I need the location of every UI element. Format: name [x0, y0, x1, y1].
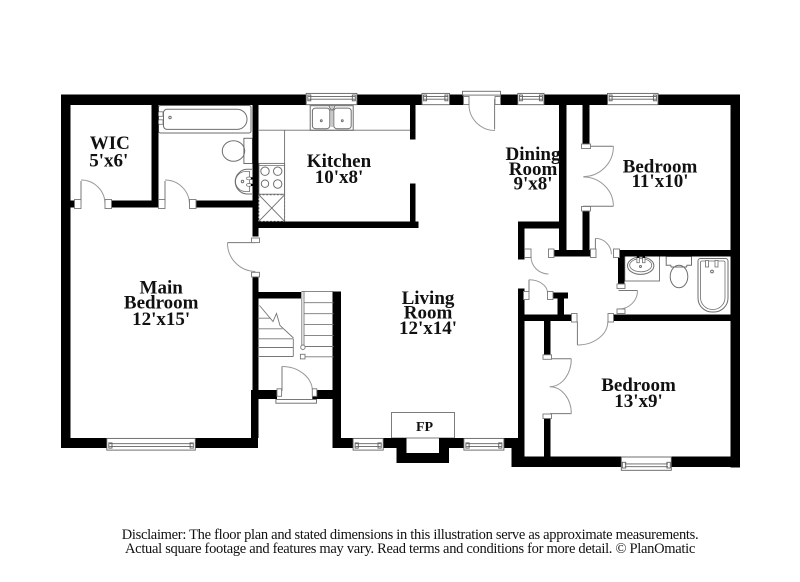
svg-text:10'x8': 10'x8' — [315, 167, 364, 188]
svg-text:11'x10': 11'x10' — [631, 171, 688, 192]
svg-text:9'x8': 9'x8' — [513, 173, 552, 194]
svg-text:Actual square footage and feat: Actual square footage and features may v… — [125, 541, 695, 557]
svg-text:12'x14': 12'x14' — [399, 318, 457, 339]
svg-text:5'x6': 5'x6' — [89, 150, 128, 171]
svg-text:12'x15': 12'x15' — [132, 309, 190, 330]
svg-text:FP: FP — [416, 420, 434, 435]
svg-text:13'x9': 13'x9' — [614, 391, 663, 412]
